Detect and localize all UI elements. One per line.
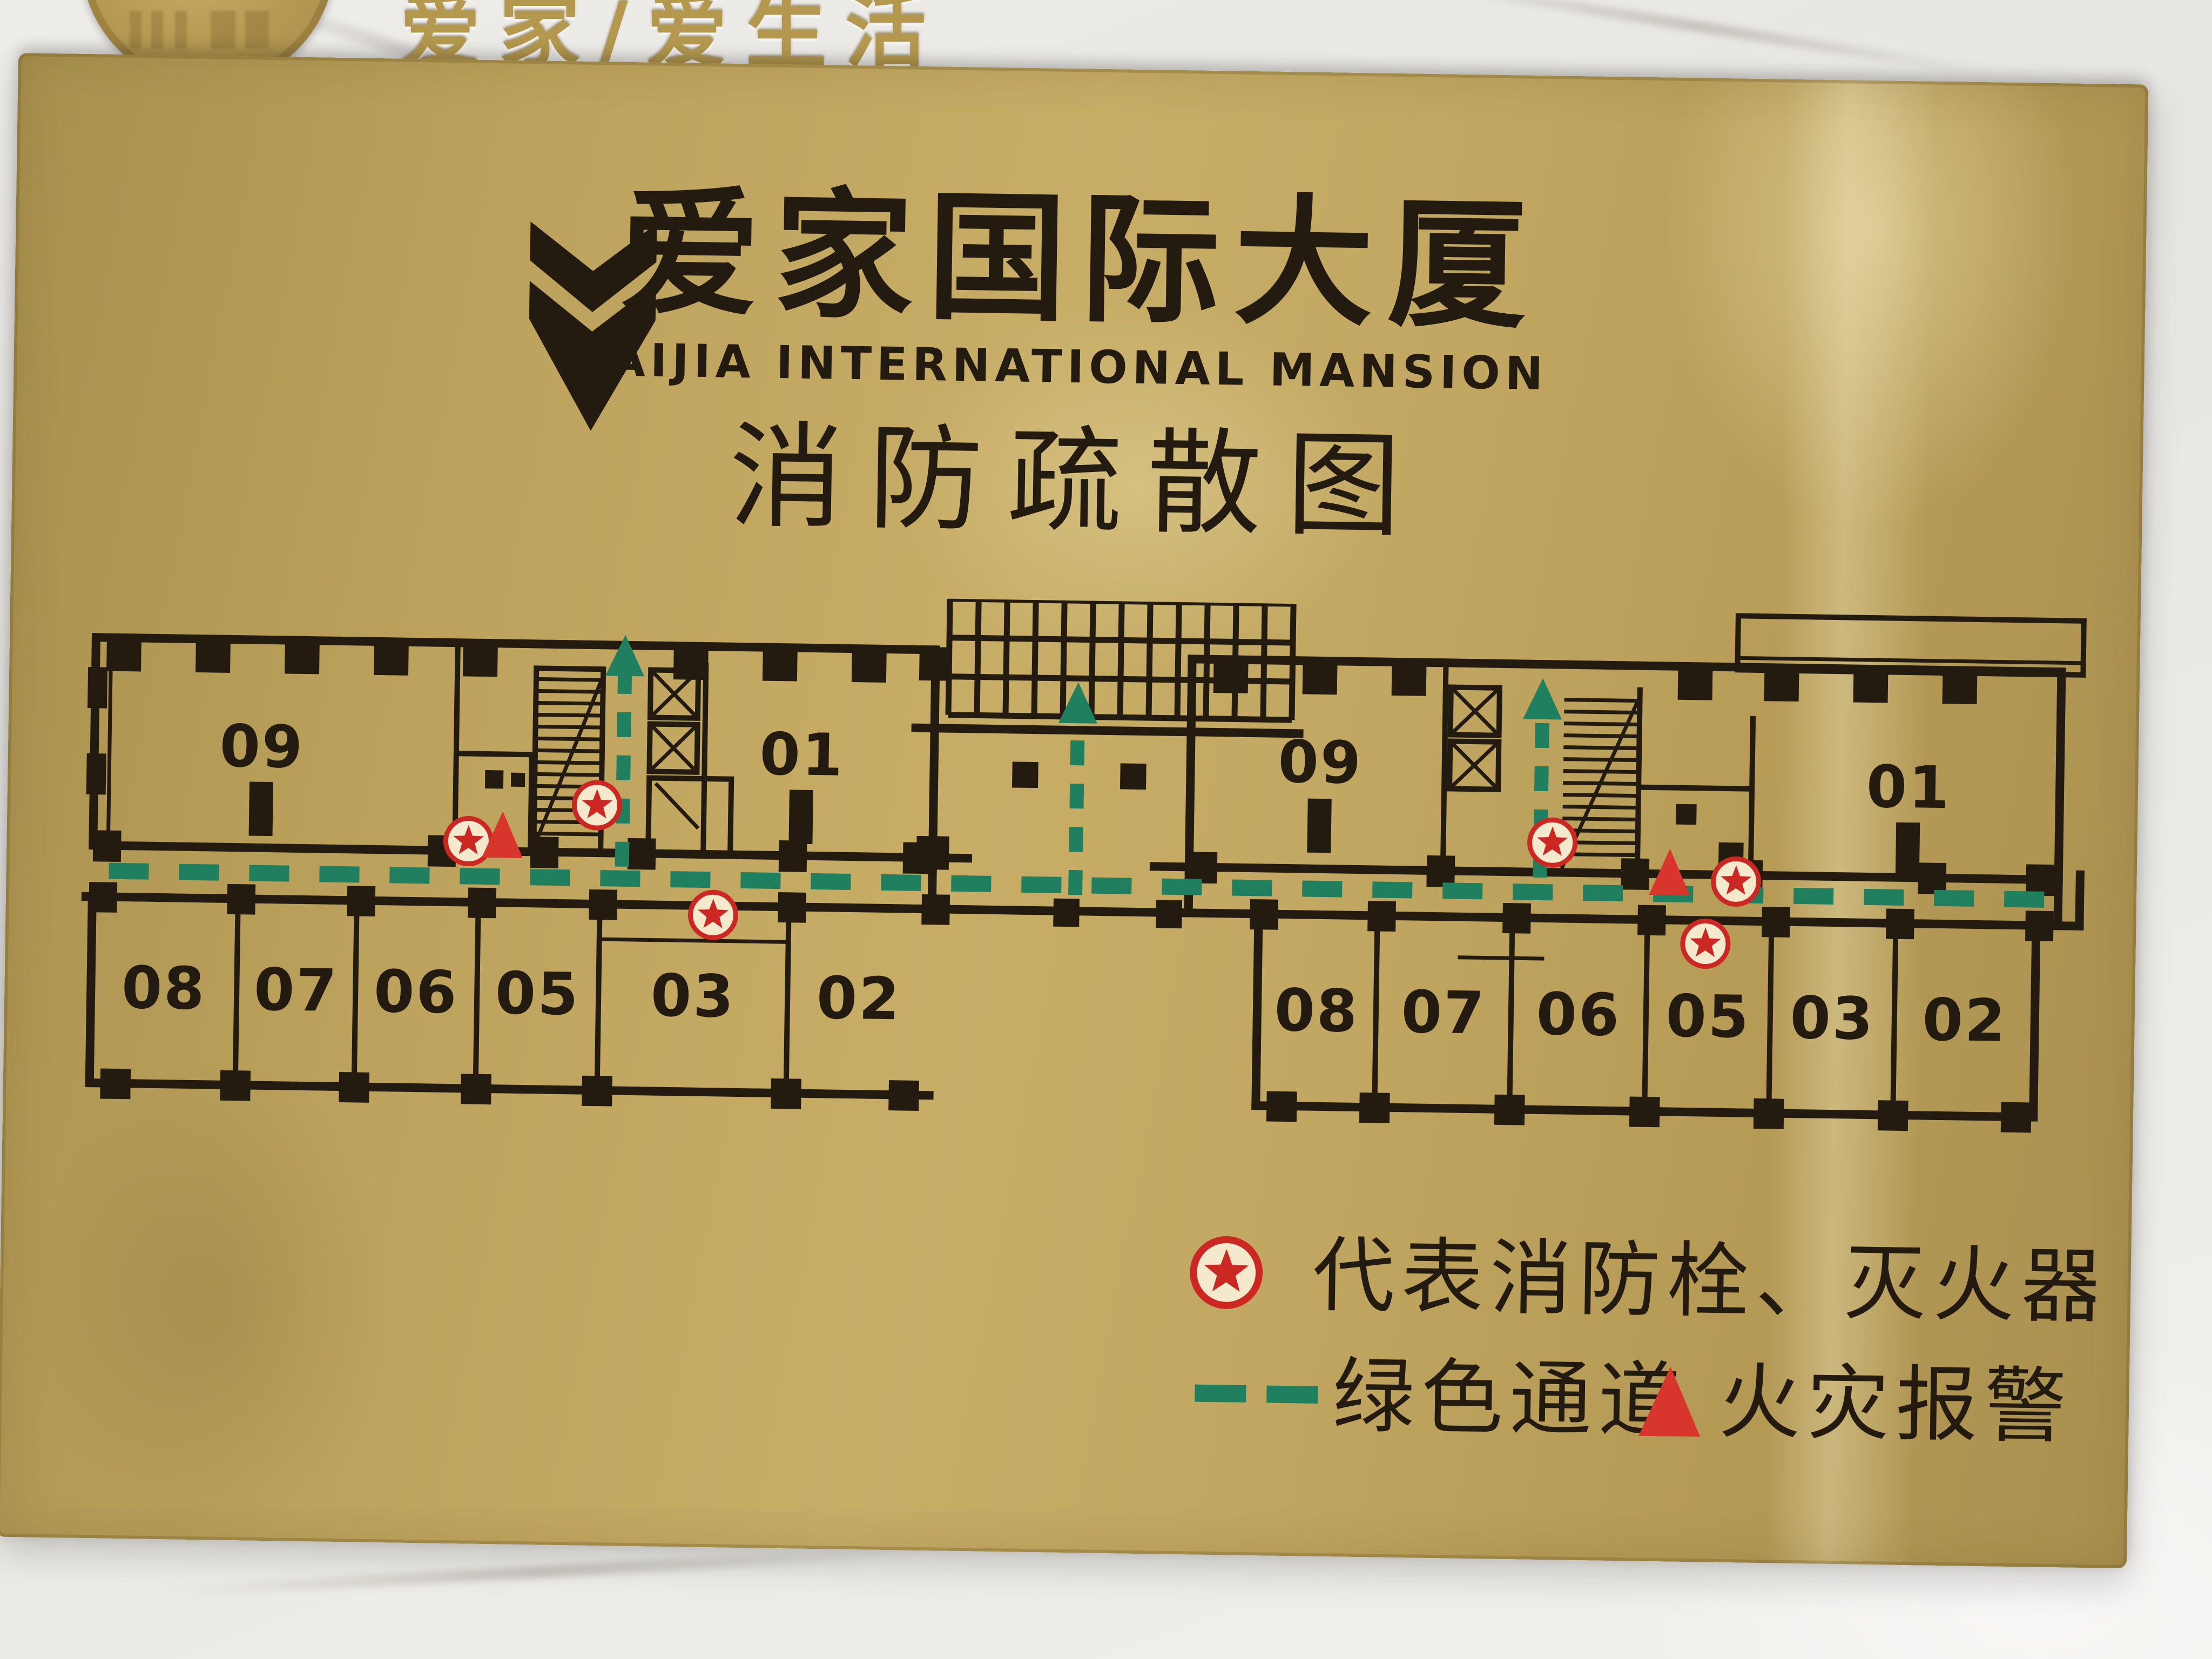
medallion-glyphs xyxy=(130,11,286,49)
room-label: 07 xyxy=(253,956,339,1025)
room-label: 01 xyxy=(759,721,845,790)
marble-vein xyxy=(1407,0,1995,79)
building-title-cn: 爱家国际大厦 xyxy=(15,174,2147,345)
fire-hydrant-icon xyxy=(1529,820,1575,866)
fire-hydrant-icon xyxy=(1713,859,1759,905)
room-label: 01 xyxy=(1866,753,1951,822)
floor-plan: 09 01 09 01 08 07 06 05 03 02 08 07 06 0… xyxy=(73,586,2106,1458)
room-label: 07 xyxy=(1401,979,1486,1047)
marble-vein xyxy=(162,1546,918,1597)
room-label: 03 xyxy=(650,962,736,1031)
fire-hydrant-icon xyxy=(1193,1239,1260,1306)
room-label: 09 xyxy=(1278,729,1363,797)
room-label: 02 xyxy=(816,965,901,1033)
legend-label-route: 绿色通道 xyxy=(1332,1348,1688,1449)
room-label: 05 xyxy=(1665,982,1751,1051)
room-label: 02 xyxy=(1922,987,2007,1055)
room-label: 08 xyxy=(1274,977,1359,1046)
room-label: 09 xyxy=(219,713,305,781)
evacuation-plaque: 爱家国际大厦 AIJIA INTERNATIONAL MANSION 消防疏散图 xyxy=(0,53,2149,1568)
fire-hydrant-icon xyxy=(574,782,620,828)
room-label: 05 xyxy=(495,960,580,1028)
legend: 代表消防栓、灭火器 绿色通道 火灾报警 xyxy=(1191,1226,2106,1455)
fire-hydrant-icon xyxy=(1682,921,1728,967)
fire-hydrant-icon xyxy=(690,892,736,938)
room-label: 08 xyxy=(121,954,206,1023)
photo-of-evacuation-plaque: { "wall": { "brand_text": "爱家/爱生活" }, "p… xyxy=(0,0,2212,1659)
legend-label-alarm: 火灾报警 xyxy=(1718,1354,2074,1455)
map-title: 消防疏散图 xyxy=(11,409,2143,555)
legend-label-hydrant: 代表消防栓、灭火器 xyxy=(1312,1228,2106,1335)
room-label: 03 xyxy=(1790,984,1875,1053)
room-label: 06 xyxy=(1536,981,1621,1049)
green-route-dash-icon xyxy=(1195,1385,1318,1404)
plaque-header: 爱家国际大厦 AIJIA INTERNATIONAL MANSION 消防疏散图 xyxy=(11,174,2147,555)
room-label: 06 xyxy=(373,958,458,1027)
